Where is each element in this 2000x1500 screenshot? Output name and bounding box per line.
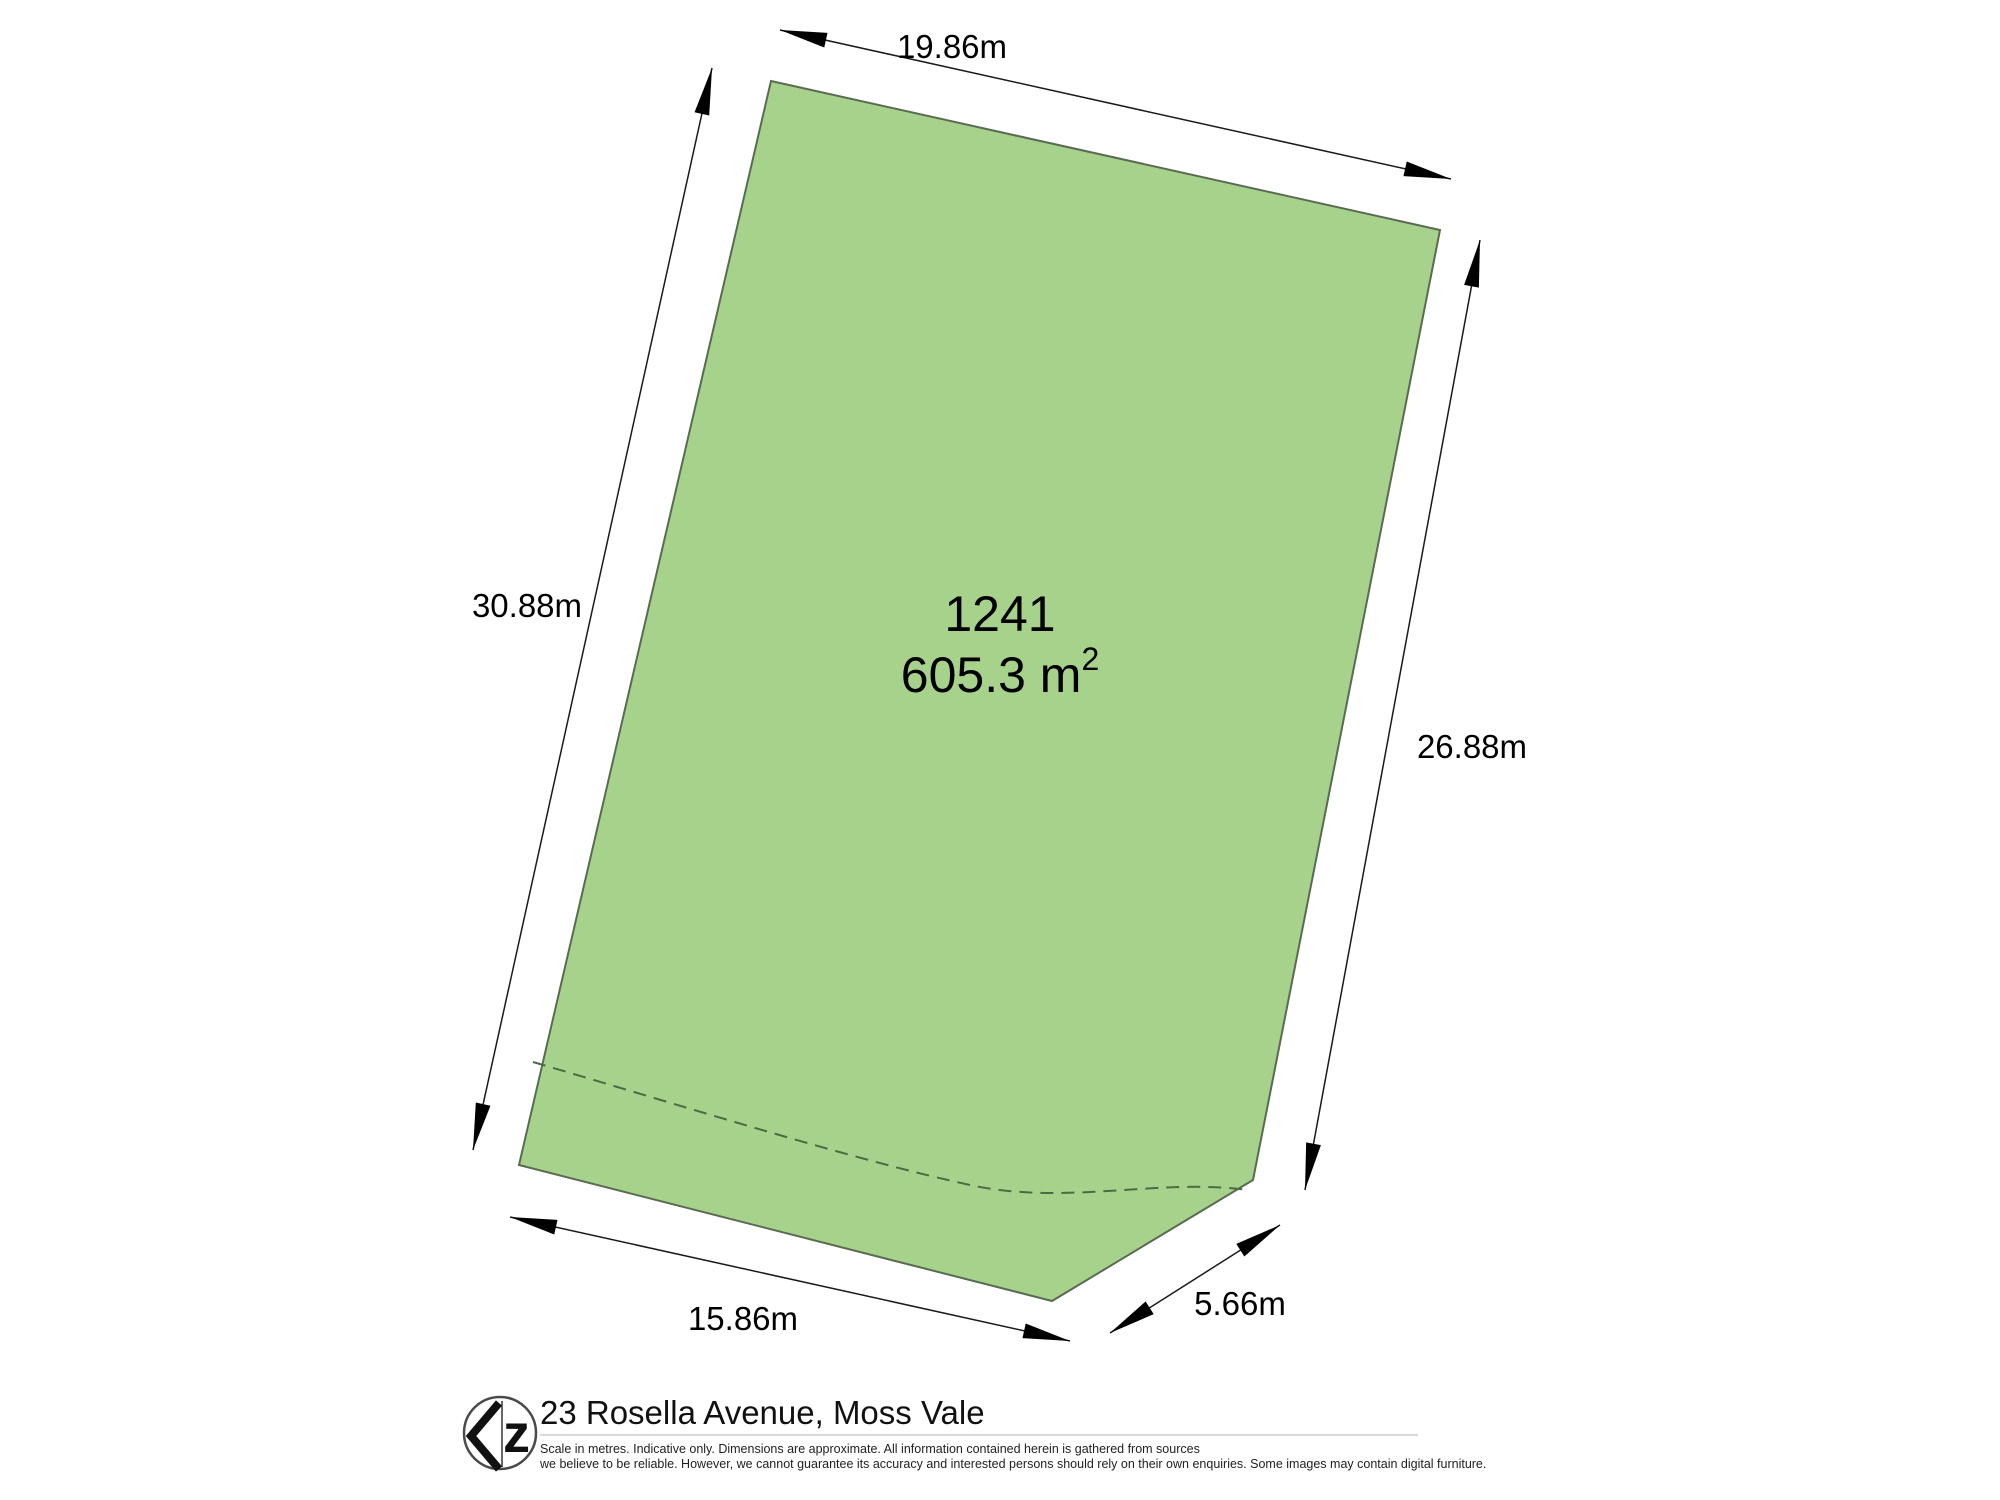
footer: z 23 Rosella Avenue, Moss Vale Scale in …: [464, 1394, 1486, 1471]
address-title: 23 Rosella Avenue, Moss Vale: [540, 1394, 985, 1431]
lot-number: 1241: [944, 586, 1055, 642]
lot-area-exponent: 2: [1081, 641, 1099, 677]
agency-logo: z: [464, 1397, 536, 1469]
dimension-label-right: 26.88m: [1417, 728, 1527, 765]
lot-area: 605.3 m2: [901, 641, 1099, 703]
logo-letter: z: [503, 1404, 530, 1464]
disclaimer-line-2: we believe to be reliable. However, we c…: [539, 1457, 1486, 1471]
dimension-label-left: 30.88m: [472, 587, 582, 624]
site-plan-svg: 19.86m 30.88m 26.88m 15.86m 5.66m 1241 6…: [0, 0, 2000, 1500]
dimension-label-bottom: 15.86m: [688, 1300, 798, 1337]
site-plan-canvas: 19.86m 30.88m 26.88m 15.86m 5.66m 1241 6…: [0, 0, 2000, 1500]
lot-area-value: 605.3 m: [901, 647, 1082, 703]
disclaimer-line-1: Scale in metres. Indicative only. Dimens…: [540, 1442, 1200, 1456]
dimension-label-top: 19.86m: [897, 28, 1007, 65]
dimension-label-corner: 5.66m: [1194, 1285, 1286, 1322]
